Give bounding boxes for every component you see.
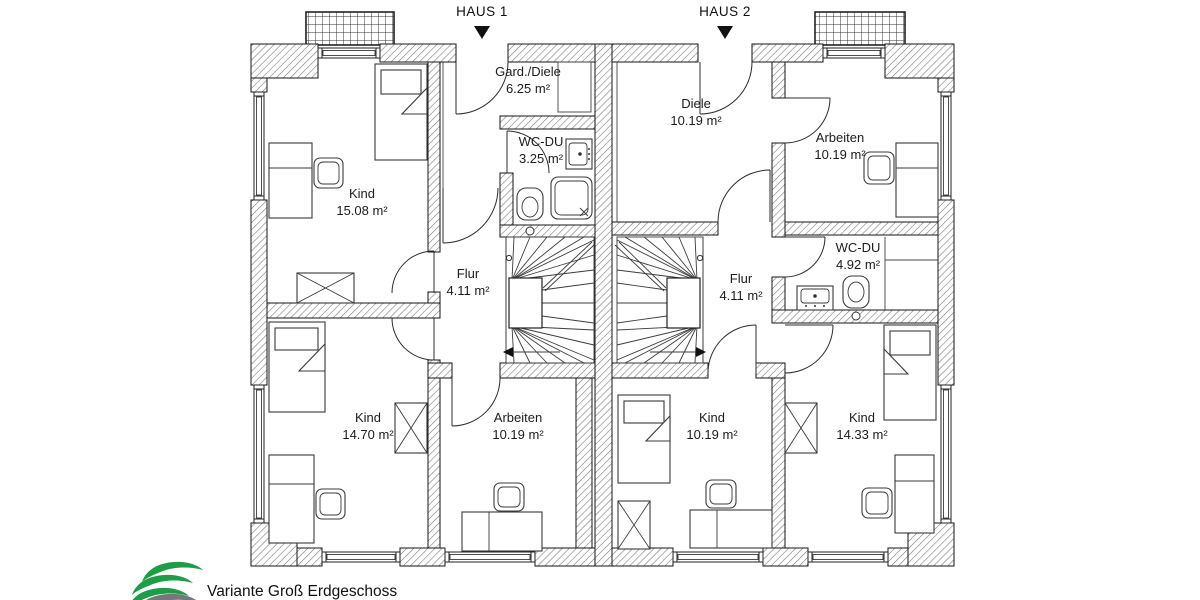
staircase-haus1 [503,237,594,363]
wardrobe [785,403,817,453]
chair [314,158,343,188]
room-label-h1-gard-diele: Gard./Diele 6.25 m² [495,64,561,97]
door-gard-diele [443,188,498,243]
floor-plan-drawing [0,0,1200,600]
room-label-h2-diele: Diele 10.19 m² [670,96,721,129]
haus2-title: HAUS 2 [699,4,751,19]
door-wcdu-haus2 [785,237,825,277]
door-kind-left-haus2 [708,325,756,373]
wardrobe [618,501,650,549]
door-diele-haus2 [718,170,770,222]
bed [375,64,427,160]
door-kind-bottom-haus1 [392,318,434,360]
chair [706,480,736,508]
sink [797,286,833,310]
desk [269,143,312,218]
entrance-marker-haus1 [474,26,490,39]
staircase-haus2 [615,237,706,363]
bed [269,322,325,412]
door-kind-right-haus2 [785,325,833,373]
bed [618,395,670,483]
room-label-h2-wc-du: WC-DU 4.92 m² [836,240,881,273]
room-label-h1-kind-top: Kind 15.08 m² [336,186,387,219]
room-label-h1-kind-bottom: Kind 14.70 m² [342,410,393,443]
light-well-grate-haus2 [815,12,905,45]
wardrobe [395,403,427,453]
room-label-h2-arbeiten: Arbeiten 10.19 m² [814,130,865,163]
sink [566,139,592,169]
company-logo [128,562,203,600]
bed [884,325,936,420]
desk [462,512,542,551]
variant-caption: Variante Groß Erdgeschoss [207,583,397,600]
chair [864,152,894,184]
light-well-grate-haus1 [306,12,394,45]
chair [316,489,345,519]
room-label-h2-kind-left: Kind 10.19 m² [686,410,737,443]
desk [895,455,934,533]
haus1-title: HAUS 1 [456,4,508,19]
entrance-marker-haus2 [717,26,733,39]
door-kind-top-haus1 [392,251,434,293]
room-label-h2-flur: Flur 4.11 m² [719,271,762,304]
desk [690,510,772,548]
chair [494,483,524,511]
room-label-h1-wc-du: WC-DU 3.25 m² [519,134,564,167]
desk [896,143,938,217]
shower [551,177,592,219]
floor-plan-sheet: HAUS 1 HAUS 2 Kind 15.08 m² Gard./Diele … [0,0,1200,600]
wardrobe [297,273,354,303]
desk [269,455,314,543]
room-label-h2-kind-right: Kind 14.33 m² [836,410,887,443]
room-label-h1-arbeiten: Arbeiten 10.19 m² [492,410,543,443]
room-label-h1-flur: Flur 4.11 m² [446,266,489,299]
chair [862,488,892,518]
